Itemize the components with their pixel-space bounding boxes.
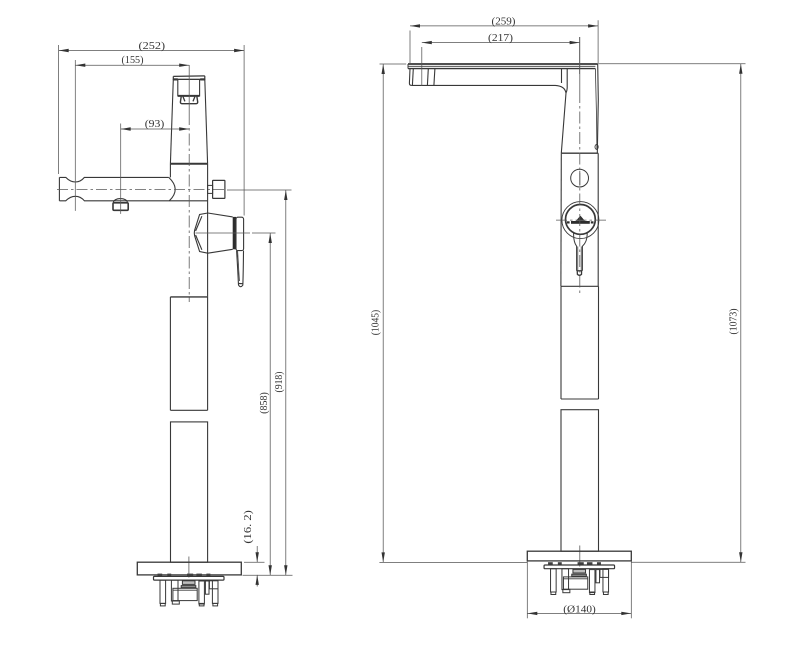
svg-text:(93): (93)	[145, 119, 165, 130]
svg-text:(252): (252)	[139, 41, 166, 52]
svg-text:(1045): (1045)	[371, 309, 382, 335]
svg-text:(259): (259)	[492, 16, 517, 27]
svg-text:(1073): (1073)	[729, 308, 740, 334]
svg-text:(16. 2): (16. 2)	[243, 510, 254, 544]
svg-text:(Ø140): (Ø140)	[563, 605, 596, 616]
svg-text:(155): (155)	[122, 55, 144, 66]
svg-text:(217): (217)	[488, 33, 514, 44]
svg-text:(918): (918)	[274, 371, 285, 392]
svg-text:(858): (858)	[259, 392, 270, 414]
